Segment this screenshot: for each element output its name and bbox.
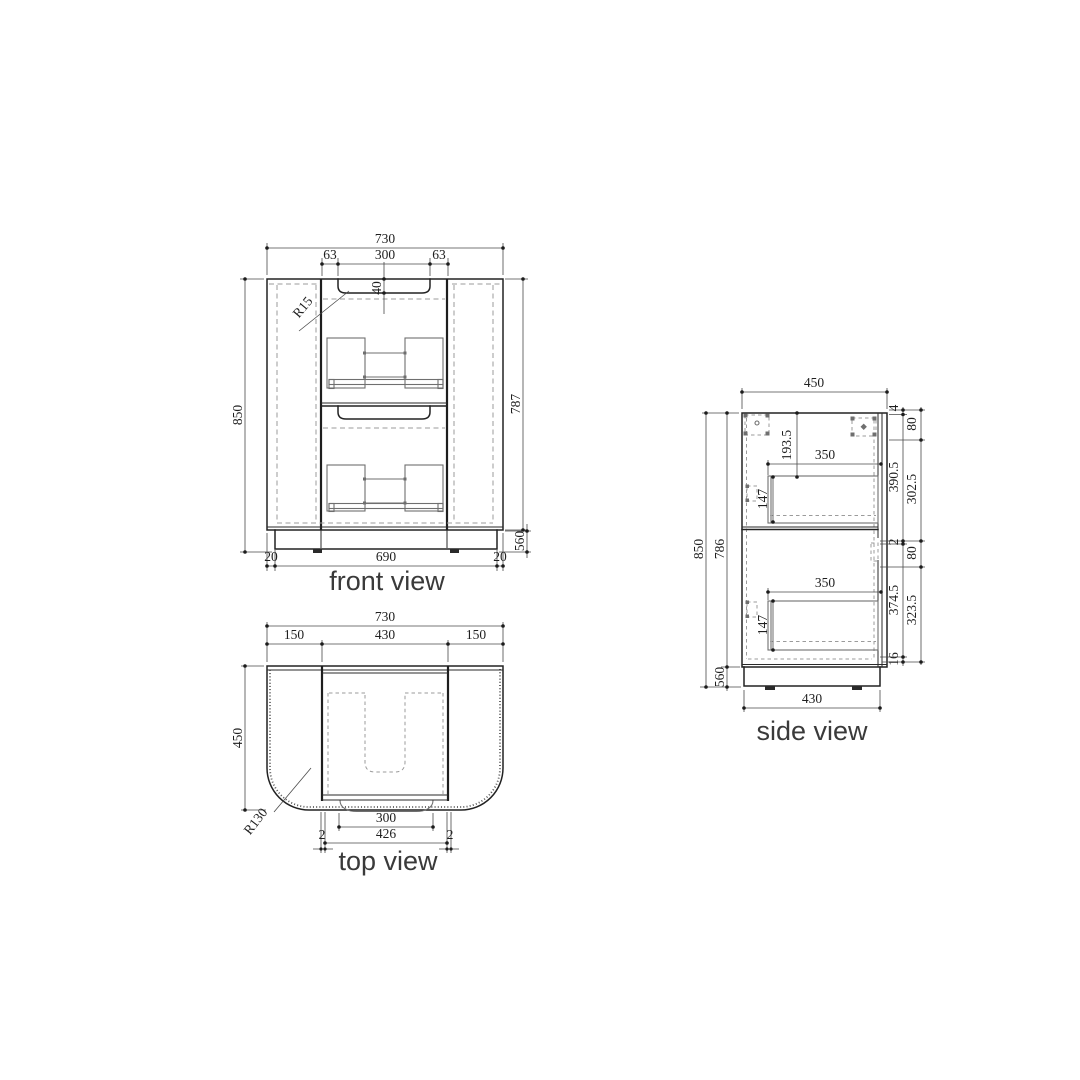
dim-top-door-gap-left: 2	[319, 827, 326, 842]
dim-top-door-gap-right: 2	[447, 827, 454, 842]
dim-side-mount-lower-span: 323.5	[904, 595, 919, 626]
dim-side-base-depth: 430	[802, 691, 823, 706]
dim-front-groove-offset-right: 63	[432, 247, 446, 262]
dim-front-plinth-inset-left: 20	[264, 549, 278, 564]
dim-front-plinth-height: 560	[512, 531, 527, 552]
dim-front-groove-offset-left: 63	[323, 247, 337, 262]
side-view-title: side view	[756, 716, 868, 746]
dim-top-door-width: 426	[376, 826, 397, 841]
drawing-svg: 730 63 300 63 40 R15 850 787	[0, 0, 1080, 1080]
dim-top-side-left: 150	[284, 627, 305, 642]
bracket-symbol-top-left	[744, 414, 770, 436]
dim-side-bottom-thickness: 16	[886, 652, 901, 666]
dim-front-overall-height: 850	[230, 405, 245, 426]
dim-side-upper-drawer-height: 147	[755, 489, 770, 510]
side-view-dimensions: 450 850 786 560 193.5 350 147 35	[691, 375, 925, 712]
dim-front-groove-radius: R15	[290, 293, 316, 320]
dim-side-lower-drawer-depth: 350	[815, 575, 836, 590]
top-view-dimensions: 730 150 430 150 450 R130 300 426	[230, 609, 505, 853]
dim-side-mount-mid-offset: 80	[904, 546, 919, 560]
dim-side-mid-gap: 2	[886, 539, 901, 546]
front-view-dimensions: 730 63 300 63 40 R15 850 787	[230, 231, 531, 571]
front-view: 730 63 300 63 40 R15 850 787	[230, 231, 531, 596]
dim-top-side-right: 150	[466, 627, 487, 642]
dim-side-top-to-drawer: 193.5	[779, 430, 794, 461]
top-view: 730 150 430 150 450 R130 300 426	[230, 609, 505, 876]
dim-top-overall-width: 730	[375, 609, 396, 624]
dim-side-mount-upper-span: 302.5	[904, 474, 919, 505]
front-view-title: front view	[329, 566, 445, 596]
side-view: 450 850 786 560 193.5 350 147 35	[691, 375, 925, 746]
dim-side-lower-section: 374.5	[886, 585, 901, 616]
dim-front-plinth-inset-right: 20	[493, 549, 507, 564]
dim-front-groove-width: 300	[375, 247, 396, 262]
dim-top-overall-depth: 450	[230, 728, 245, 749]
front-view-geometry	[267, 279, 503, 553]
dim-front-overall-width: 730	[375, 231, 396, 246]
dim-side-lower-drawer-height: 147	[755, 615, 770, 636]
front-upper-drawer	[327, 338, 443, 389]
dim-side-overall-depth: 450	[804, 375, 825, 390]
dim-side-top-thickness: 4	[886, 404, 901, 411]
dim-side-upper-drawer-depth: 350	[815, 447, 836, 462]
dim-side-overall-height: 850	[691, 539, 706, 560]
top-view-title: top view	[338, 846, 438, 876]
front-lower-drawer	[327, 465, 443, 512]
dim-front-body-height: 787	[508, 394, 523, 415]
dim-front-plinth-width: 690	[376, 549, 397, 564]
technical-drawing-page: 730 63 300 63 40 R15 850 787	[0, 0, 1080, 1080]
bracket-symbol-top-right	[851, 417, 877, 437]
dim-side-mount-top-offset: 80	[904, 417, 919, 431]
top-view-geometry	[267, 666, 503, 812]
dim-top-groove-width: 300	[376, 810, 397, 825]
dim-side-upper-section: 390.5	[886, 462, 901, 493]
dim-side-plinth-height: 560	[712, 667, 727, 688]
dim-top-opening-width: 430	[375, 627, 396, 642]
dim-side-body-height: 786	[712, 539, 727, 560]
dim-front-groove-depth: 40	[369, 281, 384, 295]
